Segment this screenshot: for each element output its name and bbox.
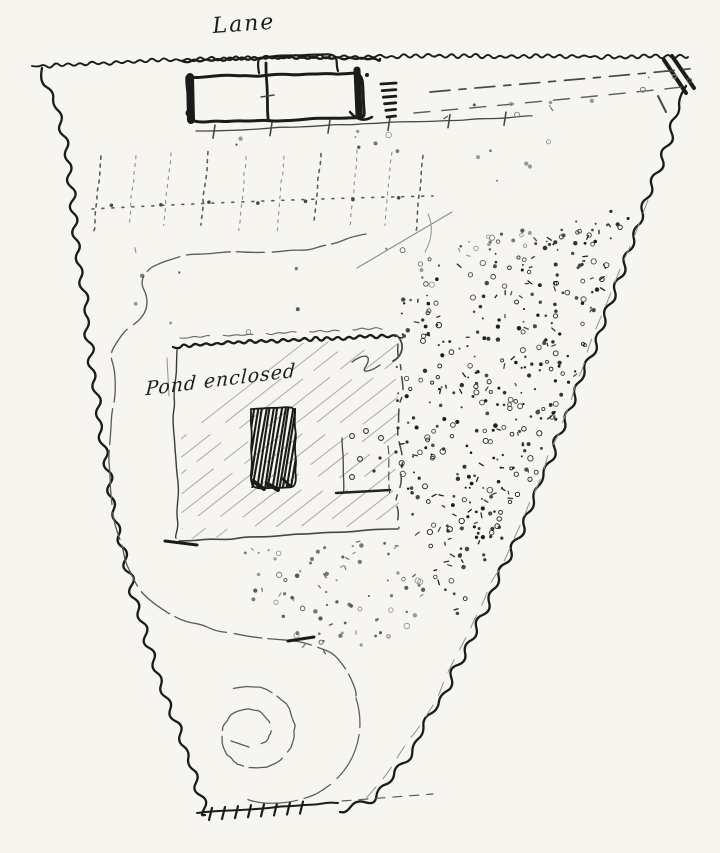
stipple-dot bbox=[533, 324, 537, 328]
stipple-dot bbox=[489, 390, 492, 393]
stipple-dot bbox=[577, 266, 580, 269]
stipple-dot bbox=[482, 317, 484, 319]
stipple-dot bbox=[528, 477, 532, 481]
stipple-dot bbox=[591, 242, 595, 246]
stipple-dot bbox=[449, 578, 454, 583]
bottom-fence-tick bbox=[261, 804, 264, 816]
stipple-dot bbox=[478, 527, 481, 530]
stipple-dot bbox=[411, 513, 414, 516]
bottom-fence-tick bbox=[222, 807, 225, 819]
stipple-dot bbox=[508, 266, 512, 270]
stipple-dot bbox=[508, 500, 511, 503]
stipple-dot bbox=[500, 536, 503, 539]
stipple-dot bbox=[581, 297, 586, 302]
stipple-dot bbox=[407, 488, 409, 490]
stipple-dot bbox=[518, 404, 523, 409]
stipple-dot bbox=[460, 547, 463, 550]
stipple-dot bbox=[426, 500, 430, 504]
stipple-dot bbox=[508, 397, 513, 402]
stipple-dot bbox=[450, 435, 453, 438]
corner-gate-mark bbox=[672, 56, 694, 88]
stipple-dot bbox=[551, 340, 555, 344]
stipple-dot-sparse bbox=[387, 635, 390, 638]
stipple-dot bbox=[558, 332, 561, 335]
stipple-dot bbox=[454, 609, 458, 610]
stipple-dot bbox=[485, 281, 489, 285]
stipple-dot-sparse bbox=[358, 560, 362, 564]
stipple-dot bbox=[425, 435, 430, 440]
stipple-dot bbox=[413, 455, 418, 456]
stipple-dot bbox=[523, 449, 526, 452]
stipple-dot-edge bbox=[459, 249, 460, 252]
stipple-dot bbox=[544, 338, 547, 341]
steps-hatch-mark bbox=[387, 116, 396, 117]
stipple-dot bbox=[479, 463, 483, 466]
stipple-dot bbox=[492, 493, 497, 495]
plot-boundary-lines bbox=[32, 54, 694, 820]
spiral-path bbox=[222, 687, 295, 768]
stipple-dot bbox=[522, 442, 524, 444]
well-circle-dot bbox=[379, 436, 384, 441]
stipple-dot bbox=[409, 387, 412, 390]
row-dot bbox=[159, 203, 163, 207]
stipple-dot-sparse bbox=[283, 592, 286, 595]
stipple-dot bbox=[503, 489, 505, 490]
crop-row-dashed bbox=[94, 156, 101, 231]
stipple-dot bbox=[522, 258, 526, 262]
stipple-dot-sparse bbox=[273, 557, 276, 560]
stipple-dot-edge bbox=[418, 262, 422, 266]
stipple-dot bbox=[468, 510, 471, 513]
stipple-dot-sparse bbox=[329, 624, 332, 625]
field-speck bbox=[134, 302, 138, 306]
stipple-dot bbox=[451, 503, 455, 507]
stipple-dot bbox=[520, 392, 522, 394]
stipple-dot bbox=[627, 217, 630, 220]
stipple-dot bbox=[543, 246, 548, 251]
stipple-dot-sparse bbox=[352, 545, 354, 547]
stipple-dot bbox=[413, 471, 415, 473]
stipple-dot-edge bbox=[520, 229, 524, 233]
stipple-dot bbox=[466, 345, 468, 347]
stipple-dot bbox=[537, 345, 541, 349]
stipple-dot bbox=[444, 561, 449, 562]
stipple-dot bbox=[475, 511, 478, 514]
stipple-dot bbox=[451, 423, 456, 428]
stipple-dot-sparse bbox=[251, 549, 253, 551]
stipple-dot bbox=[574, 374, 577, 376]
stipple-dot bbox=[480, 400, 485, 405]
front-fence-tick bbox=[328, 120, 330, 133]
stipple-dot-sparse bbox=[389, 608, 394, 613]
stipple-dot bbox=[510, 432, 514, 436]
row-dotted-crossline bbox=[92, 196, 433, 209]
stipple-dot-edge bbox=[480, 260, 485, 265]
stipple-dot bbox=[512, 466, 515, 469]
stipple-dot bbox=[414, 322, 419, 323]
stipple-dot-sparse bbox=[390, 594, 393, 597]
track-dash-line bbox=[430, 68, 698, 92]
steps-hatch-mark bbox=[385, 103, 396, 104]
stipple-dot-sparse bbox=[324, 572, 328, 576]
stipple-dot bbox=[429, 401, 431, 403]
stipple-dot bbox=[406, 328, 411, 333]
stipple-dot bbox=[421, 334, 425, 338]
stipple-dot bbox=[565, 290, 570, 295]
stipple-dot bbox=[553, 401, 558, 406]
field-speck bbox=[385, 248, 387, 250]
stipple-dot bbox=[574, 370, 576, 372]
stipple-dot-sparse bbox=[375, 618, 378, 621]
stipple-dot bbox=[515, 418, 517, 420]
stipple-dot bbox=[412, 456, 414, 458]
stipple-dot-sparse bbox=[368, 595, 370, 597]
stipple-dot-sparse bbox=[316, 550, 320, 554]
stipple-dot bbox=[434, 570, 437, 571]
stipple-dot bbox=[575, 220, 577, 222]
building-dot bbox=[365, 73, 369, 77]
stipple-dot-sparse bbox=[309, 561, 312, 564]
crop-row-dashed bbox=[163, 153, 171, 226]
top-lane-edge bbox=[32, 54, 688, 68]
stipple-dot bbox=[542, 407, 545, 410]
stipple-dot bbox=[482, 487, 484, 489]
building-corner-blob bbox=[186, 110, 193, 117]
field-speck bbox=[357, 146, 360, 149]
track-speck bbox=[551, 108, 553, 111]
stipple-dot bbox=[475, 429, 479, 433]
stipple-dot bbox=[495, 295, 497, 297]
crop-row-marks bbox=[92, 130, 551, 335]
stipple-dot bbox=[439, 404, 443, 408]
stipple-dot-sparse bbox=[341, 632, 344, 635]
spiral-mound-path bbox=[222, 687, 295, 768]
row-dot bbox=[304, 200, 308, 204]
stipple-dot bbox=[465, 547, 470, 552]
stipple-dot bbox=[436, 375, 439, 378]
stipple-dot bbox=[458, 348, 460, 350]
stipple-dot bbox=[467, 377, 469, 379]
front-fence-tick bbox=[388, 117, 390, 130]
stipple-dot-sparse bbox=[418, 584, 421, 587]
stipple-dot bbox=[562, 291, 565, 294]
front-fence-tick bbox=[504, 112, 506, 125]
stipple-dot bbox=[508, 498, 513, 499]
stipple-dot bbox=[581, 279, 585, 283]
stipple-dot bbox=[538, 283, 542, 287]
stipple-dot-sparse bbox=[282, 615, 285, 618]
crop-row-dashed bbox=[129, 156, 136, 227]
stipple-dot bbox=[400, 444, 405, 445]
stipple-dot bbox=[595, 287, 599, 291]
stipple-dot bbox=[456, 612, 460, 616]
stipple-dot-sparse bbox=[379, 631, 382, 634]
stipple-dot bbox=[453, 514, 456, 516]
stipple-dot bbox=[466, 445, 469, 448]
stipple-dot bbox=[485, 412, 489, 416]
front-fence-tick bbox=[270, 123, 272, 136]
stipple-dot bbox=[489, 495, 493, 499]
well-dot bbox=[394, 450, 397, 453]
field-speck bbox=[246, 330, 251, 335]
stipple-dot bbox=[435, 277, 439, 281]
stipple-dot bbox=[528, 469, 529, 472]
stipple-dot bbox=[502, 284, 506, 288]
stipple-dot bbox=[399, 337, 403, 338]
stipple-dot bbox=[530, 293, 533, 296]
stipple-dot bbox=[552, 345, 556, 346]
stipple-dot bbox=[481, 506, 485, 510]
stipple-dot bbox=[534, 388, 536, 390]
stipple-dot bbox=[485, 374, 489, 378]
steps-hatch-mark bbox=[383, 96, 395, 97]
stipple-dot bbox=[583, 256, 588, 257]
stipple-dot bbox=[483, 438, 488, 443]
stipple-dot-edge bbox=[429, 282, 434, 287]
stipple-dot-sparse bbox=[313, 609, 318, 614]
stipple-dot bbox=[461, 565, 465, 569]
well-circle-dot bbox=[358, 457, 363, 462]
stipple-dot bbox=[553, 351, 558, 356]
stipple-dot bbox=[546, 241, 548, 243]
stipple-dot-sparse bbox=[356, 541, 360, 542]
stipple-dot-edge bbox=[421, 276, 423, 278]
stipple-dot bbox=[498, 526, 501, 529]
row-dot bbox=[351, 198, 355, 202]
stipple-dot bbox=[535, 410, 540, 415]
stipple-dot-sparse bbox=[262, 588, 263, 591]
stipple-dot-edge bbox=[420, 268, 424, 272]
track-speck bbox=[648, 77, 650, 79]
garden-hatch-line bbox=[493, 337, 720, 610]
stipple-dot-sparse bbox=[258, 552, 260, 554]
stipple-dot bbox=[548, 243, 551, 246]
stipple-dot-sparse bbox=[359, 543, 364, 548]
stipple-dot bbox=[486, 337, 490, 341]
stipple-dot bbox=[523, 321, 525, 323]
stipple-dot bbox=[483, 429, 487, 433]
stipple-dot bbox=[534, 238, 537, 241]
stipple-dot bbox=[590, 310, 591, 312]
well-circle-dot bbox=[364, 429, 369, 434]
stipple-dot bbox=[609, 224, 611, 227]
stipple-dot bbox=[561, 372, 565, 376]
stipple-dot bbox=[439, 495, 443, 496]
stipple-dot bbox=[503, 404, 506, 407]
sketch-plan-page: Lane Pond enclosed bbox=[0, 0, 720, 853]
stipple-dot bbox=[421, 338, 426, 343]
stipple-dot bbox=[461, 560, 463, 562]
stipple-dot-sparse bbox=[319, 640, 323, 644]
stipple-dot bbox=[474, 390, 479, 395]
stipple-dot bbox=[551, 411, 555, 415]
stipple-dot bbox=[571, 252, 574, 255]
well-dot bbox=[396, 426, 399, 429]
stipple-dot bbox=[437, 316, 440, 317]
bottom-fence-line bbox=[197, 803, 338, 813]
stipple-dot bbox=[573, 241, 578, 246]
stipple-dot bbox=[418, 477, 421, 480]
stipple-dot bbox=[546, 360, 549, 363]
stipple-dot bbox=[558, 365, 561, 368]
stipple-dot bbox=[534, 470, 538, 474]
crop-row-dashed bbox=[416, 156, 423, 232]
stipple-dot bbox=[489, 535, 492, 538]
stipple-dot bbox=[457, 264, 461, 267]
stipple-dot-sparse bbox=[257, 573, 261, 577]
stipple-dot bbox=[609, 210, 612, 213]
stipple-dot bbox=[547, 238, 551, 241]
stipple-dot-sparse bbox=[267, 549, 269, 551]
stipple-dot bbox=[463, 465, 467, 469]
stipple-dot-sparse bbox=[279, 593, 281, 596]
stipple-dot bbox=[456, 477, 460, 481]
stipple-dot bbox=[521, 268, 524, 271]
stipple-dot bbox=[438, 580, 439, 585]
field-speck bbox=[489, 149, 492, 152]
stipple-dot-edge bbox=[438, 264, 440, 266]
stipple-dot bbox=[409, 299, 411, 301]
stipple-dot bbox=[453, 592, 456, 595]
stipple-dot bbox=[581, 322, 585, 326]
garden-hatch-line bbox=[259, 337, 615, 610]
crop-row-dashed bbox=[385, 152, 392, 225]
stipple-dot bbox=[530, 362, 533, 365]
stipple-dot bbox=[554, 379, 557, 382]
stipple-dot bbox=[404, 376, 408, 380]
front-fence-line bbox=[196, 116, 532, 131]
stipple-dot bbox=[449, 350, 454, 355]
stipple-dot bbox=[459, 518, 464, 523]
row-dot bbox=[256, 201, 260, 205]
hand-drawn-plot-plan: Lane Pond enclosed bbox=[0, 0, 720, 853]
track-speck bbox=[473, 103, 476, 106]
stipple-dot bbox=[518, 433, 519, 435]
stipple-dot bbox=[521, 330, 525, 334]
stipple-dot bbox=[441, 386, 443, 388]
bottom-fence-tick bbox=[287, 802, 290, 814]
building-on-lane bbox=[186, 54, 699, 138]
stipple-dot bbox=[477, 532, 480, 535]
stipple-dot bbox=[436, 324, 438, 326]
field-speck bbox=[169, 321, 172, 324]
stipple-dot bbox=[557, 361, 561, 365]
field-speck bbox=[496, 180, 498, 182]
stipple-dot bbox=[432, 523, 436, 527]
stipple-dot bbox=[442, 341, 444, 343]
stipple-dot bbox=[603, 264, 605, 268]
stipple-dot-sparse bbox=[324, 651, 326, 654]
stipple-dot-edge bbox=[474, 246, 479, 251]
stipple-dot bbox=[397, 392, 399, 394]
field-speck bbox=[373, 141, 377, 145]
stipple-dot bbox=[474, 356, 476, 358]
stipple-dot bbox=[502, 454, 504, 456]
stipple-dot bbox=[465, 487, 467, 489]
stipple-dot bbox=[539, 369, 542, 372]
stipple-dot bbox=[450, 554, 454, 557]
front-fence-tick bbox=[448, 115, 450, 128]
stipple-dot bbox=[484, 500, 488, 502]
stipple-dot bbox=[434, 301, 438, 305]
stipple-dot bbox=[438, 364, 442, 368]
stipple-dot bbox=[540, 447, 543, 450]
garden-hatch-line bbox=[516, 337, 720, 610]
building-right-gable bbox=[357, 70, 359, 115]
stipple-dot bbox=[552, 328, 555, 331]
stipple-dot bbox=[537, 431, 542, 436]
stipple-dot-sparse bbox=[396, 571, 400, 575]
stipple-dot bbox=[542, 341, 546, 345]
stipple-dot bbox=[567, 381, 570, 384]
field-speck bbox=[178, 271, 180, 273]
stipple-dot-sparse bbox=[274, 600, 278, 604]
stipple-dot-sparse bbox=[318, 616, 322, 620]
stipple-dot bbox=[492, 429, 495, 432]
stipple-dot bbox=[549, 403, 553, 407]
stipple-dot bbox=[553, 314, 557, 318]
stipple-dot-sparse bbox=[346, 558, 349, 560]
spiral-inner-hook bbox=[231, 741, 249, 747]
stipple-dot-sparse bbox=[335, 579, 337, 581]
stipple-dot bbox=[487, 487, 493, 493]
bottom-fence-tick bbox=[209, 808, 212, 820]
building-corner-blob bbox=[186, 76, 193, 83]
stipple-dot-edge bbox=[523, 244, 526, 247]
stipple-dot bbox=[434, 575, 438, 579]
field-speck bbox=[296, 307, 300, 311]
stipple-dot bbox=[438, 528, 440, 532]
garden-top-scribble bbox=[173, 335, 396, 348]
stipple-dot bbox=[553, 303, 557, 307]
stipple-dot bbox=[483, 558, 486, 561]
stipple-dot-sparse bbox=[284, 579, 287, 582]
stipple-dot-sparse bbox=[310, 557, 314, 561]
stipple-dot bbox=[402, 333, 404, 335]
corner-gate-post bbox=[658, 96, 666, 112]
track-dash-line bbox=[414, 86, 692, 113]
left-boundary-zigzag bbox=[41, 68, 206, 815]
stipple-dot bbox=[514, 361, 518, 365]
stipple-dot-sparse bbox=[360, 643, 363, 646]
stipple-dot bbox=[472, 395, 475, 398]
stipple-dot bbox=[559, 393, 563, 397]
stipple-dot-sparse bbox=[421, 588, 425, 592]
stipple-dot bbox=[431, 381, 434, 384]
stipple-dot bbox=[491, 274, 496, 279]
stipple-dot-sparse bbox=[383, 542, 386, 545]
stipple-dot bbox=[415, 532, 419, 535]
stipple-dot bbox=[583, 260, 585, 262]
stipple-dot bbox=[547, 343, 548, 346]
bottom-fence-tick bbox=[300, 802, 303, 814]
stipple-dot bbox=[481, 498, 483, 500]
stipple-dot bbox=[575, 296, 579, 300]
stipple-dot bbox=[488, 440, 492, 444]
stipple-dot bbox=[460, 528, 463, 529]
stipple-dot bbox=[468, 363, 473, 368]
stipple-dot bbox=[489, 530, 494, 535]
stipple-dot bbox=[527, 270, 531, 274]
stipple-dot bbox=[467, 475, 471, 479]
stipple-dot bbox=[418, 450, 423, 455]
stipple-dot-sparse bbox=[420, 594, 423, 596]
stipple-dot bbox=[445, 542, 446, 545]
stipple-dot bbox=[448, 565, 452, 566]
stipple-dot bbox=[424, 446, 427, 449]
stipple-dot bbox=[423, 484, 428, 489]
stipple-dot bbox=[590, 307, 592, 309]
